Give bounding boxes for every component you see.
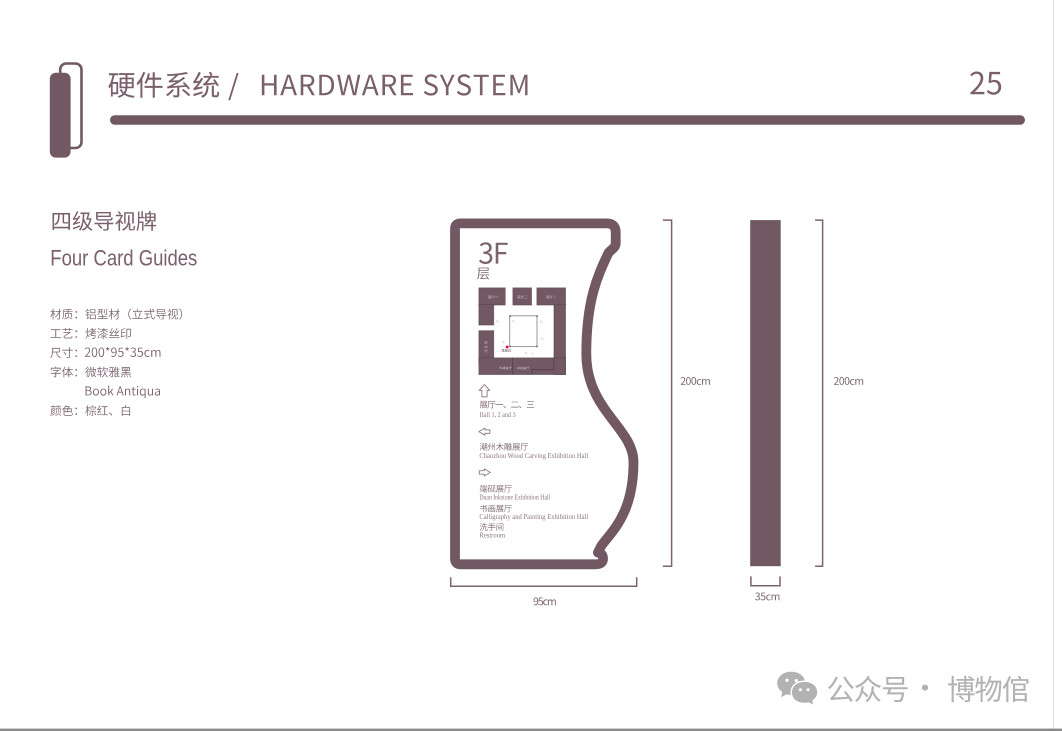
svg-text:Hall 1, 2 and 3: Hall 1, 2 and 3: [479, 412, 516, 419]
svg-text:Four Card Guides: Four Card Guides: [50, 245, 197, 270]
svg-text:Restroom: Restroom: [479, 532, 505, 539]
svg-text:Calligraphy and Painting Exhib: Calligraphy and Painting Exhibition Hall: [479, 514, 588, 521]
svg-text:Chaozhou Wood Carving Exhibiti: Chaozhou Wood Carving Exhibition Hall: [479, 453, 588, 460]
svg-text:Duan Inkstone Exhibition Hall: Duan Inkstone Exhibition Hall: [479, 494, 550, 501]
